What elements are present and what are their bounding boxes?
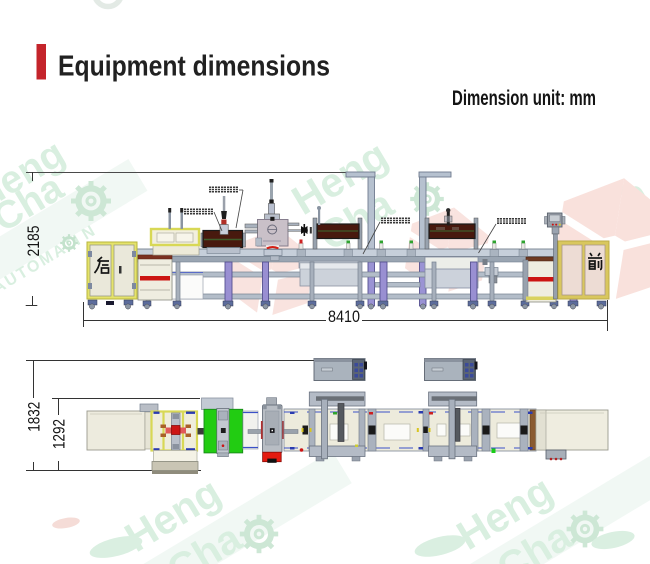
svg-text:8410: 8410 — [328, 308, 360, 326]
svg-text:2185: 2185 — [25, 226, 43, 257]
svg-text:Dimension unit: mm: Dimension unit: mm — [452, 87, 596, 110]
svg-text:1832: 1832 — [25, 402, 43, 432]
svg-text:Equipment dimensions: Equipment dimensions — [58, 51, 330, 83]
svg-text:1292: 1292 — [51, 419, 69, 449]
